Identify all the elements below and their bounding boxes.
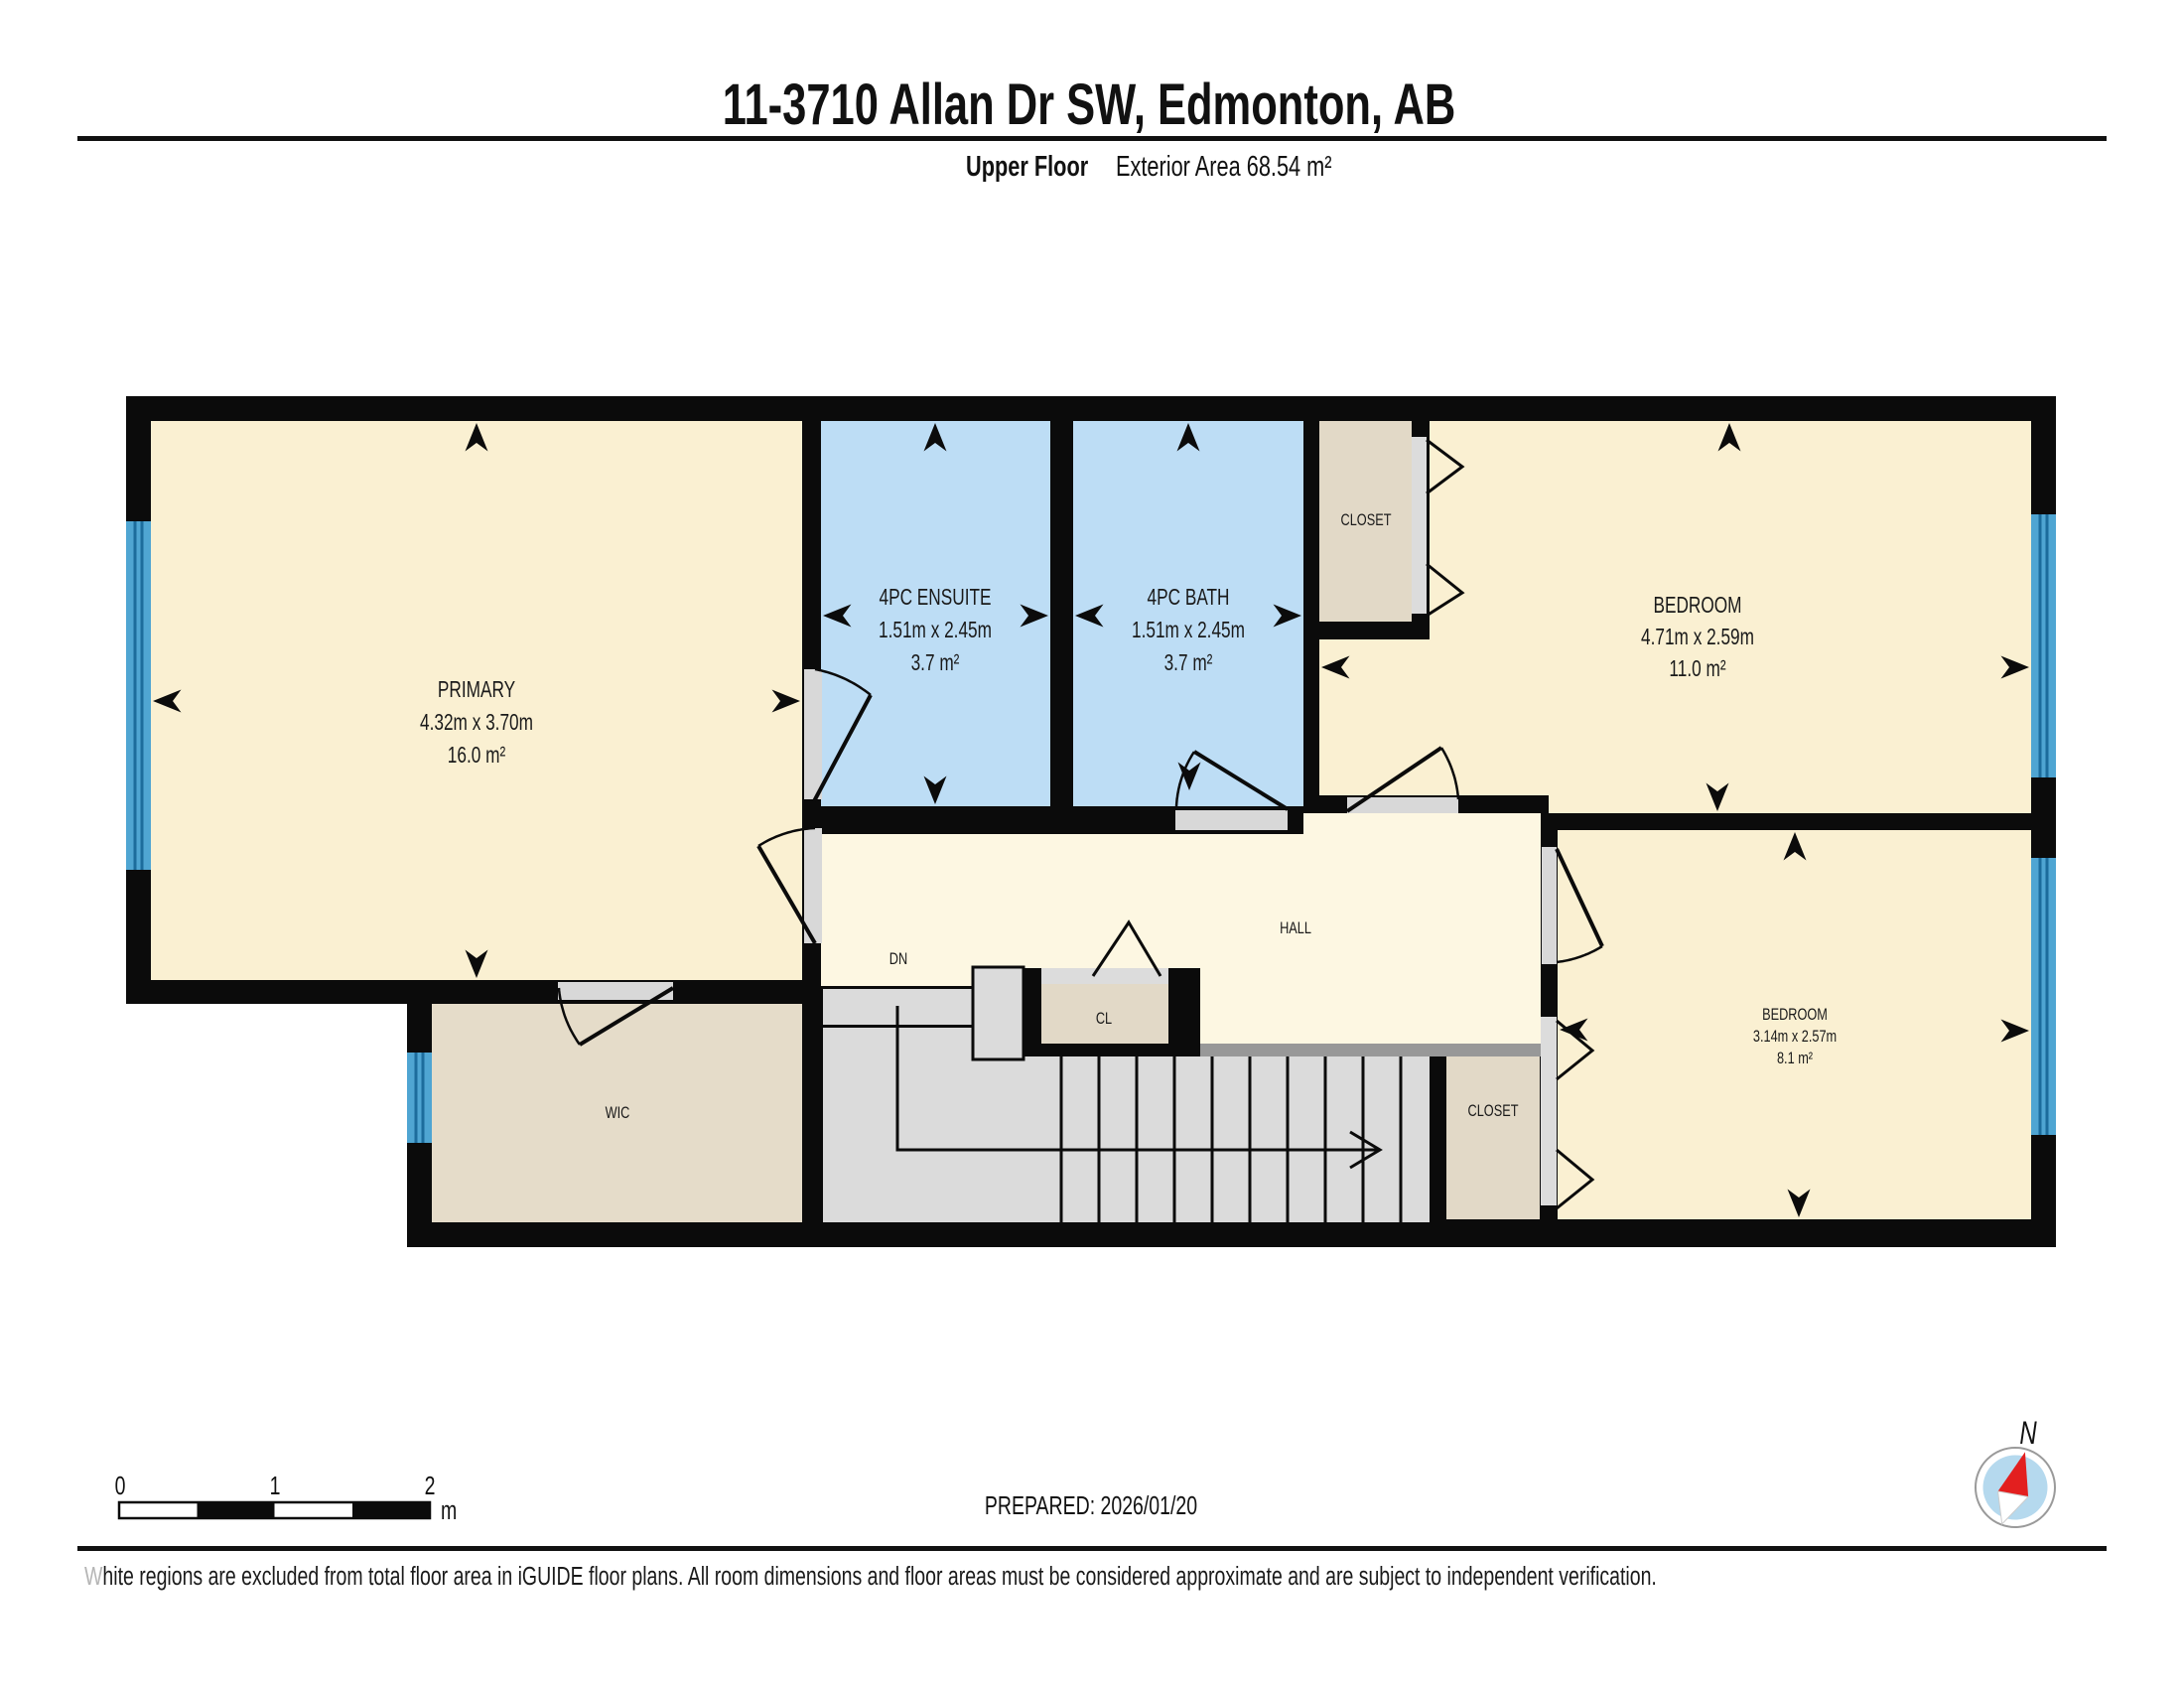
svg-text:16.0 m²: 16.0 m² [448,744,506,769]
svg-text:0: 0 [115,1471,126,1499]
svg-text:1.51m x 2.45m: 1.51m x 2.45m [879,619,992,643]
svg-text:CLOSET: CLOSET [1341,510,1392,529]
svg-text:CLOSET: CLOSET [1468,1101,1519,1120]
svg-text:m: m [441,1495,457,1524]
svg-text:CL: CL [1096,1009,1112,1028]
svg-text:3.14m x 2.57m: 3.14m x 2.57m [1753,1027,1837,1046]
svg-text:8.1 m²: 8.1 m² [1777,1049,1813,1067]
svg-text:PREPARED: 2026/01/20: PREPARED: 2026/01/20 [985,1490,1197,1519]
svg-text:2: 2 [425,1471,436,1499]
svg-text:1.51m x 2.45m: 1.51m x 2.45m [1132,619,1245,643]
svg-text:11.0 m²: 11.0 m² [1669,657,1725,682]
svg-text:1: 1 [270,1471,281,1499]
svg-text:4PC BATH: 4PC BATH [1147,586,1229,611]
svg-text:Upper Floor: Upper Floor [966,151,1088,183]
svg-text:4.32m x 3.70m: 4.32m x 3.70m [420,711,533,736]
svg-text:3.7 m²: 3.7 m² [911,651,960,676]
svg-text:N: N [2019,1415,2037,1451]
svg-text:BEDROOM: BEDROOM [1762,1005,1828,1024]
svg-text:WIC: WIC [606,1103,630,1122]
svg-text:Exterior Area 68.54 m²: Exterior Area 68.54 m² [1116,151,1332,183]
svg-text:4PC ENSUITE: 4PC ENSUITE [879,586,991,611]
svg-text:3.7 m²: 3.7 m² [1164,651,1213,676]
svg-text:PRIMARY: PRIMARY [438,678,516,703]
svg-text:HALL: HALL [1280,918,1311,937]
svg-text:BEDROOM: BEDROOM [1653,594,1741,619]
svg-text:DN: DN [889,949,907,968]
svg-text:4.71m x 2.59m: 4.71m x 2.59m [1641,626,1754,650]
svg-text:11-3710 Allan Dr SW, Edmonton,: 11-3710 Allan Dr SW, Edmonton, AB [723,72,1456,136]
svg-text:White regions are excluded fro: White regions are excluded from total fl… [84,1561,1657,1590]
